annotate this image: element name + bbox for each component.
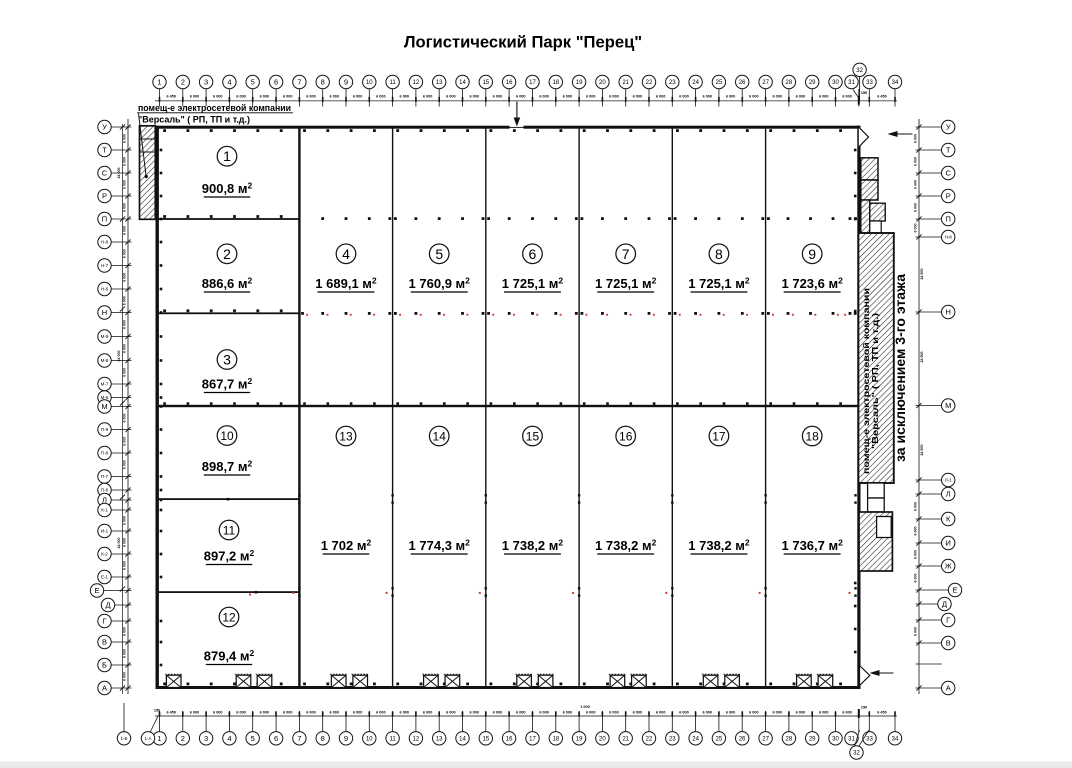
svg-text:1 736,7 м2: 1 736,7 м2 xyxy=(782,538,844,554)
svg-text:П-7: П-7 xyxy=(101,474,109,479)
svg-text:6 000: 6 000 xyxy=(123,437,127,446)
svg-text:1 725,1 м2: 1 725,1 м2 xyxy=(595,276,657,292)
svg-text:6 000: 6 000 xyxy=(796,710,806,714)
svg-text:34: 34 xyxy=(892,737,899,743)
svg-text:7: 7 xyxy=(297,734,301,743)
svg-text:33: 33 xyxy=(866,737,873,743)
svg-text:11: 11 xyxy=(389,80,396,86)
svg-text:П-8: П-8 xyxy=(101,451,109,456)
svg-text:879,4 м2: 879,4 м2 xyxy=(204,648,255,664)
svg-text:Н-7: Н-7 xyxy=(101,263,109,268)
svg-text:24: 24 xyxy=(692,80,699,86)
svg-text:886,6 м2: 886,6 м2 xyxy=(202,276,253,292)
svg-text:4: 4 xyxy=(342,246,350,262)
svg-text:У: У xyxy=(946,123,951,132)
svg-text:9: 9 xyxy=(808,246,816,262)
svg-text:Л: Л xyxy=(946,490,951,499)
svg-text:за исключением 3-го этажа: за исключением 3-го этажа xyxy=(892,274,908,462)
svg-text:6 000: 6 000 xyxy=(913,527,917,536)
svg-text:11: 11 xyxy=(389,737,396,743)
svg-text:18: 18 xyxy=(552,80,559,86)
svg-text:6 000: 6 000 xyxy=(423,94,433,98)
svg-text:6 000: 6 000 xyxy=(400,94,410,98)
svg-text:22: 22 xyxy=(646,80,653,86)
svg-text:6 000: 6 000 xyxy=(726,94,736,98)
svg-text:1 738,2 м2: 1 738,2 м2 xyxy=(502,538,564,554)
svg-text:6 000: 6 000 xyxy=(123,180,127,189)
svg-text:8: 8 xyxy=(321,78,325,87)
svg-text:В: В xyxy=(946,639,951,648)
svg-text:1 702 м2: 1 702 м2 xyxy=(321,538,372,554)
svg-text:150: 150 xyxy=(154,709,160,713)
svg-text:6 000: 6 000 xyxy=(123,320,127,329)
svg-text:14: 14 xyxy=(459,737,466,743)
svg-text:1: 1 xyxy=(223,148,231,164)
svg-text:А: А xyxy=(102,684,107,693)
svg-text:17: 17 xyxy=(712,429,726,443)
svg-text:13: 13 xyxy=(436,737,443,743)
svg-text:А: А xyxy=(946,684,951,693)
svg-text:6 000: 6 000 xyxy=(749,710,759,714)
svg-text:17: 17 xyxy=(529,737,536,743)
svg-text:30: 30 xyxy=(832,80,839,86)
svg-text:8: 8 xyxy=(321,734,325,743)
svg-text:6 000: 6 000 xyxy=(913,574,917,583)
svg-text:1 000: 1 000 xyxy=(580,705,590,709)
svg-text:8: 8 xyxy=(715,246,723,262)
svg-text:6 000: 6 000 xyxy=(796,94,806,98)
svg-text:6 000: 6 000 xyxy=(913,502,917,511)
svg-text:6 000: 6 000 xyxy=(749,94,759,98)
svg-text:30: 30 xyxy=(832,737,839,743)
svg-text:12: 12 xyxy=(413,80,420,86)
svg-text:5: 5 xyxy=(435,246,443,262)
svg-text:6 000: 6 000 xyxy=(772,94,782,98)
svg-text:12: 12 xyxy=(413,737,420,743)
svg-text:29: 29 xyxy=(809,80,816,86)
svg-text:Т: Т xyxy=(102,146,107,155)
svg-text:Р: Р xyxy=(102,192,107,201)
svg-text:24 000: 24 000 xyxy=(117,538,121,549)
svg-text:28: 28 xyxy=(786,737,793,743)
svg-text:помещ-е электросетевой компани: помещ-е электросетевой компании xyxy=(138,103,291,113)
svg-text:21: 21 xyxy=(622,80,629,86)
svg-text:6 000: 6 000 xyxy=(123,649,127,658)
svg-text:6 000: 6 000 xyxy=(123,344,127,353)
svg-text:6 000: 6 000 xyxy=(563,710,573,714)
svg-text:28: 28 xyxy=(786,80,793,86)
svg-text:10: 10 xyxy=(366,80,373,86)
svg-text:26: 26 xyxy=(739,80,746,86)
svg-text:6: 6 xyxy=(274,734,278,743)
svg-text:6 000: 6 000 xyxy=(819,710,829,714)
svg-text:6 000: 6 000 xyxy=(913,550,917,559)
svg-text:М-9: М-9 xyxy=(101,334,109,339)
svg-text:6 000: 6 000 xyxy=(842,94,852,98)
svg-text:16: 16 xyxy=(619,429,633,443)
svg-text:6 000: 6 000 xyxy=(772,710,782,714)
svg-text:Н-8: Н-8 xyxy=(101,240,109,245)
svg-text:6 000: 6 000 xyxy=(679,710,689,714)
svg-text:18: 18 xyxy=(806,429,820,443)
svg-text:1 738,2 м2: 1 738,2 м2 xyxy=(688,538,750,554)
svg-text:6 000: 6 000 xyxy=(633,710,643,714)
svg-text:6 000: 6 000 xyxy=(726,710,736,714)
svg-text:У: У xyxy=(102,123,107,132)
svg-text:27: 27 xyxy=(762,737,769,743)
svg-text:6 000: 6 000 xyxy=(236,94,246,98)
svg-text:6 000: 6 000 xyxy=(123,538,127,547)
svg-text:6 000: 6 000 xyxy=(516,710,526,714)
svg-text:14: 14 xyxy=(433,429,447,443)
svg-text:Л-1: Л-1 xyxy=(945,478,952,483)
svg-text:6 000: 6 000 xyxy=(586,710,596,714)
svg-text:3: 3 xyxy=(223,352,231,368)
svg-text:6 000: 6 000 xyxy=(703,710,713,714)
svg-text:21: 21 xyxy=(622,737,629,743)
svg-text:6 000: 6 000 xyxy=(190,94,200,98)
svg-text:1 725,1 м2: 1 725,1 м2 xyxy=(502,276,564,292)
svg-text:23: 23 xyxy=(669,80,676,86)
svg-text:6 000: 6 000 xyxy=(376,710,386,714)
svg-text:6 000: 6 000 xyxy=(656,94,666,98)
svg-text:"Версаль" ( РП, ТП и т.д.): "Версаль" ( РП, ТП и т.д.) xyxy=(871,313,880,449)
svg-text:6 000: 6 000 xyxy=(679,94,689,98)
svg-text:6 000: 6 000 xyxy=(123,516,127,525)
svg-text:6 000: 6 000 xyxy=(123,296,127,305)
svg-text:6 000: 6 000 xyxy=(819,94,829,98)
svg-text:7: 7 xyxy=(297,78,301,87)
svg-text:16: 16 xyxy=(506,737,513,743)
svg-text:7: 7 xyxy=(622,246,630,262)
svg-text:6 450: 6 450 xyxy=(877,94,887,98)
svg-text:6 000: 6 000 xyxy=(400,710,410,714)
svg-text:6 450: 6 450 xyxy=(166,710,176,714)
svg-text:Н-6: Н-6 xyxy=(101,287,109,292)
svg-text:Н: Н xyxy=(945,308,950,317)
svg-text:32: 32 xyxy=(853,751,860,757)
svg-text:6 000: 6 000 xyxy=(330,710,340,714)
svg-text:13: 13 xyxy=(339,429,353,443)
svg-text:6 450: 6 450 xyxy=(166,94,176,98)
svg-text:6 000: 6 000 xyxy=(493,710,503,714)
svg-text:4: 4 xyxy=(227,78,231,87)
svg-text:6 000: 6 000 xyxy=(913,157,917,166)
svg-text:2: 2 xyxy=(223,246,231,262)
svg-text:3: 3 xyxy=(204,734,208,743)
svg-text:С: С xyxy=(945,169,951,178)
svg-text:М: М xyxy=(945,401,951,410)
svg-text:6 000: 6 000 xyxy=(609,94,619,98)
svg-text:27: 27 xyxy=(762,80,769,86)
svg-text:Логистический Парк "Перец": Логистический Парк "Перец" xyxy=(404,33,642,52)
svg-text:6 000: 6 000 xyxy=(913,627,917,636)
svg-text:6 000: 6 000 xyxy=(123,561,127,570)
svg-text:18: 18 xyxy=(552,737,559,743)
svg-text:2: 2 xyxy=(181,78,185,87)
svg-text:6 000: 6 000 xyxy=(516,94,526,98)
svg-text:13: 13 xyxy=(436,80,443,86)
svg-text:6 000: 6 000 xyxy=(260,94,270,98)
svg-text:Ж: Ж xyxy=(945,562,952,571)
svg-text:24 000: 24 000 xyxy=(117,351,121,362)
svg-text:В: В xyxy=(102,638,107,647)
svg-text:10: 10 xyxy=(366,737,373,743)
svg-text:Г: Г xyxy=(102,617,106,626)
svg-text:6 000: 6 000 xyxy=(123,414,127,423)
svg-text:20: 20 xyxy=(599,737,606,743)
svg-text:6 000: 6 000 xyxy=(913,180,917,189)
svg-text:Д: Д xyxy=(942,600,947,609)
svg-text:1 774,3 м2: 1 774,3 м2 xyxy=(409,538,471,554)
svg-text:24: 24 xyxy=(692,737,699,743)
svg-text:"Версаль" ( РП, ТП и т.д.): "Версаль" ( РП, ТП и т.д.) xyxy=(138,114,250,124)
svg-text:15: 15 xyxy=(526,429,540,443)
svg-text:6 000: 6 000 xyxy=(609,710,619,714)
svg-text:6 000: 6 000 xyxy=(123,368,127,377)
svg-text:6 000: 6 000 xyxy=(123,203,127,212)
svg-text:9: 9 xyxy=(344,734,348,743)
svg-text:М-8: М-8 xyxy=(101,358,109,363)
svg-text:29: 29 xyxy=(809,737,816,743)
svg-text:150: 150 xyxy=(861,91,867,95)
svg-text:3: 3 xyxy=(204,78,208,87)
svg-text:6 000: 6 000 xyxy=(123,672,127,681)
svg-text:6 000: 6 000 xyxy=(213,710,223,714)
svg-text:1 738,2 м2: 1 738,2 м2 xyxy=(595,538,657,554)
svg-text:15: 15 xyxy=(482,737,489,743)
svg-text:П: П xyxy=(946,215,951,224)
svg-text:Е: Е xyxy=(952,586,957,595)
svg-text:11: 11 xyxy=(223,523,236,537)
svg-text:12: 12 xyxy=(222,610,236,624)
svg-text:898,7 м2: 898,7 м2 xyxy=(202,459,253,475)
svg-text:6 000: 6 000 xyxy=(539,710,549,714)
svg-text:32: 32 xyxy=(856,68,863,74)
svg-text:6 000: 6 000 xyxy=(913,203,917,212)
svg-text:6 000: 6 000 xyxy=(306,94,316,98)
svg-text:1: 1 xyxy=(157,78,161,87)
svg-text:6 000: 6 000 xyxy=(283,94,293,98)
svg-text:6 000: 6 000 xyxy=(493,94,503,98)
svg-text:М-7: М-7 xyxy=(101,382,109,387)
svg-text:17: 17 xyxy=(529,80,536,86)
svg-text:6 000: 6 000 xyxy=(123,460,127,469)
svg-text:6 000: 6 000 xyxy=(123,273,127,282)
svg-text:6 000: 6 000 xyxy=(656,710,666,714)
svg-text:Е: Е xyxy=(94,586,99,595)
svg-text:6: 6 xyxy=(274,78,278,87)
svg-text:Б: Б xyxy=(102,661,107,670)
svg-text:П: П xyxy=(102,215,107,224)
svg-text:26: 26 xyxy=(739,737,746,743)
svg-text:15: 15 xyxy=(482,80,489,86)
svg-text:6 000: 6 000 xyxy=(446,710,456,714)
svg-text:24 500: 24 500 xyxy=(920,269,924,280)
svg-text:5: 5 xyxy=(251,78,255,87)
svg-text:помещ-е электросетевой компани: помещ-е электросетевой компании xyxy=(862,288,871,474)
svg-text:И: И xyxy=(946,539,951,548)
svg-text:6 000: 6 000 xyxy=(842,710,852,714)
svg-text:6 450: 6 450 xyxy=(877,710,887,714)
svg-text:6 000: 6 000 xyxy=(213,94,223,98)
svg-text:1: 1 xyxy=(157,734,161,743)
svg-text:24 500: 24 500 xyxy=(920,352,924,363)
svg-text:6 000: 6 000 xyxy=(353,94,363,98)
svg-text:1 689,1 м2: 1 689,1 м2 xyxy=(315,276,377,292)
svg-text:С: С xyxy=(102,169,108,178)
svg-text:6 000: 6 000 xyxy=(190,710,200,714)
svg-text:9: 9 xyxy=(344,78,348,87)
svg-text:22: 22 xyxy=(646,737,653,743)
svg-text:6 000: 6 000 xyxy=(123,157,127,166)
svg-text:14: 14 xyxy=(459,80,466,86)
svg-text:К-1: К-1 xyxy=(101,508,108,513)
svg-text:31: 31 xyxy=(848,737,855,743)
svg-text:4: 4 xyxy=(227,734,231,743)
svg-text:Т: Т xyxy=(946,146,951,155)
svg-text:867,7 м2: 867,7 м2 xyxy=(202,376,253,392)
svg-text:Е-1: Е-1 xyxy=(101,575,109,580)
svg-text:1-А: 1-А xyxy=(144,736,151,741)
svg-text:6 000: 6 000 xyxy=(586,94,596,98)
svg-text:Н: Н xyxy=(102,308,107,317)
svg-text:6 000: 6 000 xyxy=(563,94,573,98)
svg-text:К-2: К-2 xyxy=(101,552,108,557)
svg-text:П-9: П-9 xyxy=(101,427,109,432)
svg-text:19: 19 xyxy=(576,737,583,743)
svg-text:6: 6 xyxy=(529,246,537,262)
svg-text:6 000: 6 000 xyxy=(913,134,917,143)
svg-text:П-6: П-6 xyxy=(101,488,109,493)
svg-text:897,2 м2: 897,2 м2 xyxy=(204,548,255,564)
svg-text:6 000: 6 000 xyxy=(376,94,386,98)
svg-text:И-1: И-1 xyxy=(101,529,109,534)
svg-text:6 000: 6 000 xyxy=(633,94,643,98)
svg-text:6 000: 6 000 xyxy=(703,94,713,98)
svg-text:6 000: 6 000 xyxy=(283,710,293,714)
svg-text:25: 25 xyxy=(716,737,723,743)
svg-text:1 760,9 м2: 1 760,9 м2 xyxy=(409,276,471,292)
svg-text:К: К xyxy=(946,515,951,524)
svg-text:6 000: 6 000 xyxy=(469,94,479,98)
svg-text:2: 2 xyxy=(181,734,185,743)
svg-text:6 000: 6 000 xyxy=(330,94,340,98)
svg-text:33: 33 xyxy=(866,80,873,86)
svg-text:6 000: 6 000 xyxy=(123,249,127,258)
svg-text:М: М xyxy=(101,402,107,411)
svg-text:34: 34 xyxy=(892,80,899,86)
svg-text:6 000: 6 000 xyxy=(913,224,917,233)
svg-text:24 500: 24 500 xyxy=(920,445,924,456)
svg-text:6 000: 6 000 xyxy=(353,710,363,714)
svg-text:6 000: 6 000 xyxy=(539,94,549,98)
svg-text:6 000: 6 000 xyxy=(123,627,127,636)
svg-text:Р: Р xyxy=(946,192,951,201)
svg-text:6 000: 6 000 xyxy=(236,710,246,714)
svg-text:6 000: 6 000 xyxy=(123,134,127,143)
svg-text:6 000: 6 000 xyxy=(260,710,270,714)
svg-text:1 723,6 м2: 1 723,6 м2 xyxy=(782,276,844,292)
svg-text:24 000: 24 000 xyxy=(117,168,121,179)
svg-text:Г: Г xyxy=(946,616,950,625)
svg-text:6 000: 6 000 xyxy=(306,710,316,714)
svg-text:1-Б: 1-Б xyxy=(121,736,128,741)
svg-text:16: 16 xyxy=(506,80,513,86)
svg-text:Д: Д xyxy=(105,601,110,610)
svg-text:6 000: 6 000 xyxy=(123,226,127,235)
svg-text:6 000: 6 000 xyxy=(469,710,479,714)
svg-text:31: 31 xyxy=(848,80,855,86)
svg-text:1 725,1 м2: 1 725,1 м2 xyxy=(688,276,750,292)
svg-text:5: 5 xyxy=(251,734,255,743)
svg-text:6 000: 6 000 xyxy=(423,710,433,714)
svg-text:10: 10 xyxy=(220,429,234,443)
svg-text:19: 19 xyxy=(576,80,583,86)
svg-text:23: 23 xyxy=(669,737,676,743)
svg-text:25: 25 xyxy=(716,80,723,86)
svg-text:Н-8: Н-8 xyxy=(945,235,953,240)
svg-text:20: 20 xyxy=(599,80,606,86)
svg-text:6 000: 6 000 xyxy=(446,94,456,98)
svg-text:900,8 м2: 900,8 м2 xyxy=(202,181,253,197)
svg-text:150: 150 xyxy=(861,705,867,709)
